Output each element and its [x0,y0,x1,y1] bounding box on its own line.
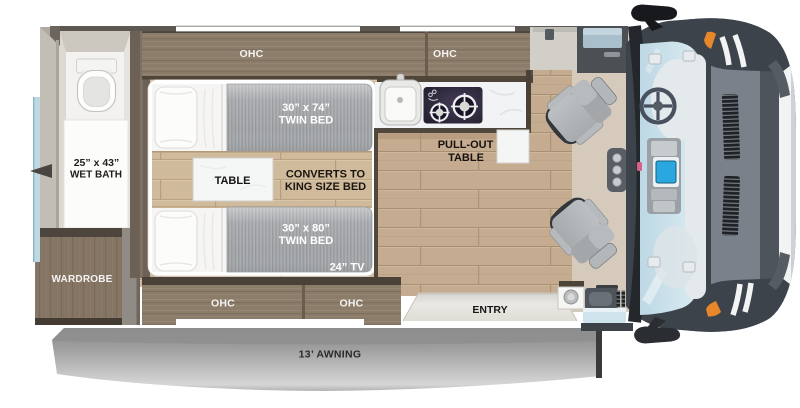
svg-text:PULL-OUT: PULL-OUT [438,139,494,151]
svg-text:30” x 80”: 30” x 80” [282,223,330,235]
svg-text:OHC: OHC [211,298,235,310]
svg-text:OHC: OHC [340,298,364,310]
svg-text:CONVERTS TO: CONVERTS TO [286,169,366,181]
svg-text:OHC: OHC [240,48,264,60]
svg-text:WET BATH: WET BATH [70,170,122,181]
svg-text:13’ AWNING: 13’ AWNING [299,349,362,361]
svg-text:TABLE: TABLE [448,152,484,164]
svg-text:TWIN BED: TWIN BED [279,115,333,127]
svg-text:WARDROBE: WARDROBE [51,274,112,285]
svg-text:OHC: OHC [433,48,457,60]
svg-text:KING SIZE BED: KING SIZE BED [285,181,366,193]
svg-text:24” TV: 24” TV [330,262,366,274]
svg-text:TABLE: TABLE [215,175,251,187]
svg-text:ENTRY: ENTRY [472,304,507,316]
svg-text:25” x 43”: 25” x 43” [74,157,120,169]
svg-text:30” x 74”: 30” x 74” [282,102,330,114]
svg-text:TWIN BED: TWIN BED [279,235,333,247]
